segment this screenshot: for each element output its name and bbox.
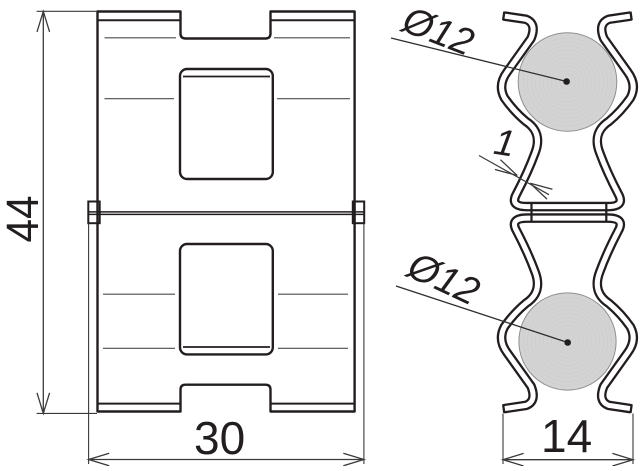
svg-text:44: 44 <box>0 196 48 243</box>
svg-text:30: 30 <box>194 412 245 464</box>
svg-text:14: 14 <box>541 410 592 462</box>
